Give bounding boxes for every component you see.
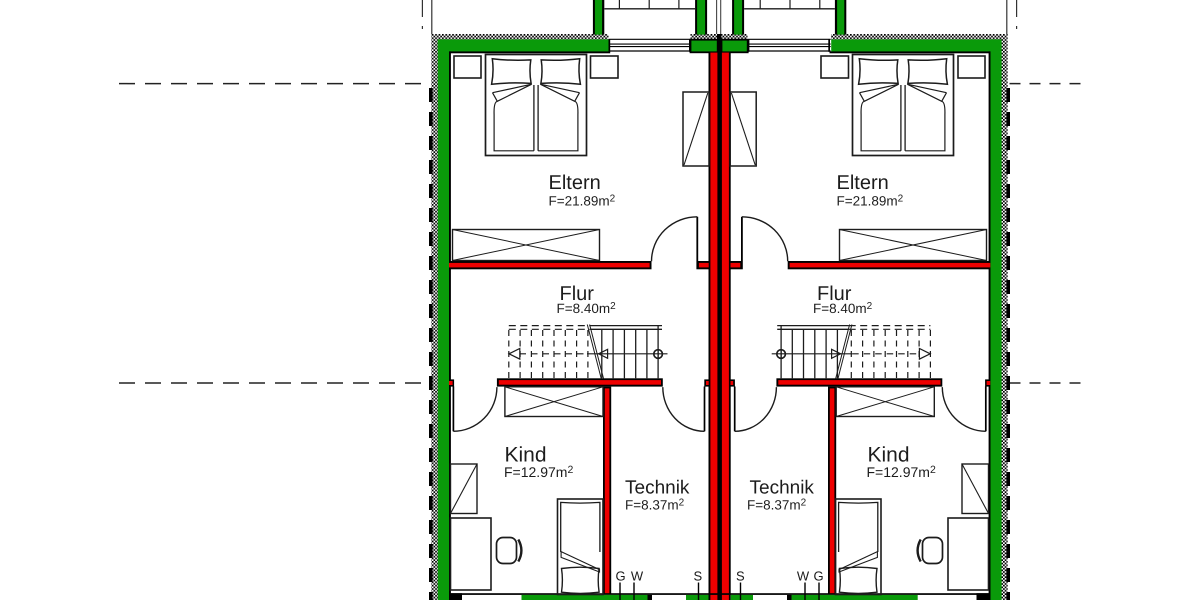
svg-text:F=8.37m2: F=8.37m2	[625, 498, 685, 513]
svg-text:G: G	[813, 569, 823, 584]
svg-text:S: S	[736, 569, 745, 584]
svg-text:Technik: Technik	[625, 478, 690, 499]
svg-text:F=8.40m2: F=8.40m2	[557, 301, 617, 316]
svg-text:W: W	[631, 569, 644, 584]
svg-text:F=21.89m2: F=21.89m2	[837, 194, 904, 209]
svg-text:F=12.97m2: F=12.97m2	[867, 464, 936, 480]
svg-text:Eltern: Eltern	[549, 172, 601, 194]
svg-text:W: W	[797, 569, 810, 584]
svg-text:F=12.97m2: F=12.97m2	[504, 464, 573, 480]
svg-text:F=8.37m2: F=8.37m2	[747, 498, 807, 513]
svg-text:F=8.40m2: F=8.40m2	[813, 301, 873, 316]
svg-text:G: G	[615, 569, 625, 584]
svg-text:S: S	[693, 569, 702, 584]
svg-text:F=21.89m2: F=21.89m2	[549, 194, 616, 209]
svg-text:Eltern: Eltern	[837, 172, 889, 194]
svg-text:Technik: Technik	[750, 478, 815, 499]
